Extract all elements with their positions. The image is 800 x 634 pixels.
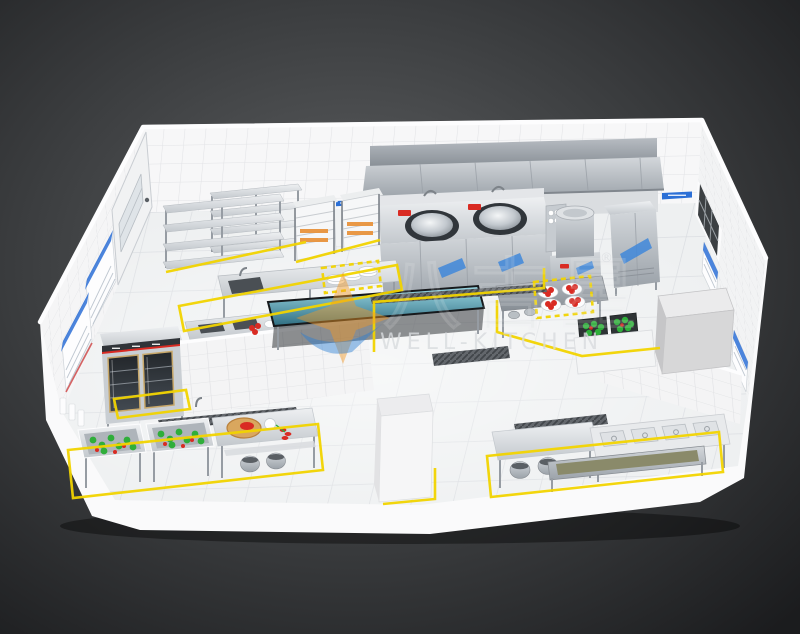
brand-watermark-en: WELL-KITCHEN [380, 330, 603, 355]
cube-front [662, 310, 734, 374]
white-cabinet-box [374, 394, 433, 502]
door-handle [145, 198, 149, 202]
food-trays [347, 222, 373, 226]
food-trays [300, 229, 328, 233]
steamer-tray-stack-2 [340, 188, 383, 252]
tomato [255, 323, 261, 329]
storage-cube [655, 288, 734, 374]
tomato [252, 329, 258, 335]
box-front [379, 411, 433, 502]
kitchen-render-stage: 八吉星 ® WELL-KITCHEN [0, 0, 800, 634]
steamer-tray-stack-1 [293, 195, 338, 261]
wok-control-panel [468, 204, 481, 210]
raw-meat [240, 422, 254, 430]
registered-mark: ® [600, 251, 613, 266]
wok-control-panel [398, 210, 411, 216]
kitchen-3d-render: 八吉星 ® WELL-KITCHEN [0, 0, 800, 634]
